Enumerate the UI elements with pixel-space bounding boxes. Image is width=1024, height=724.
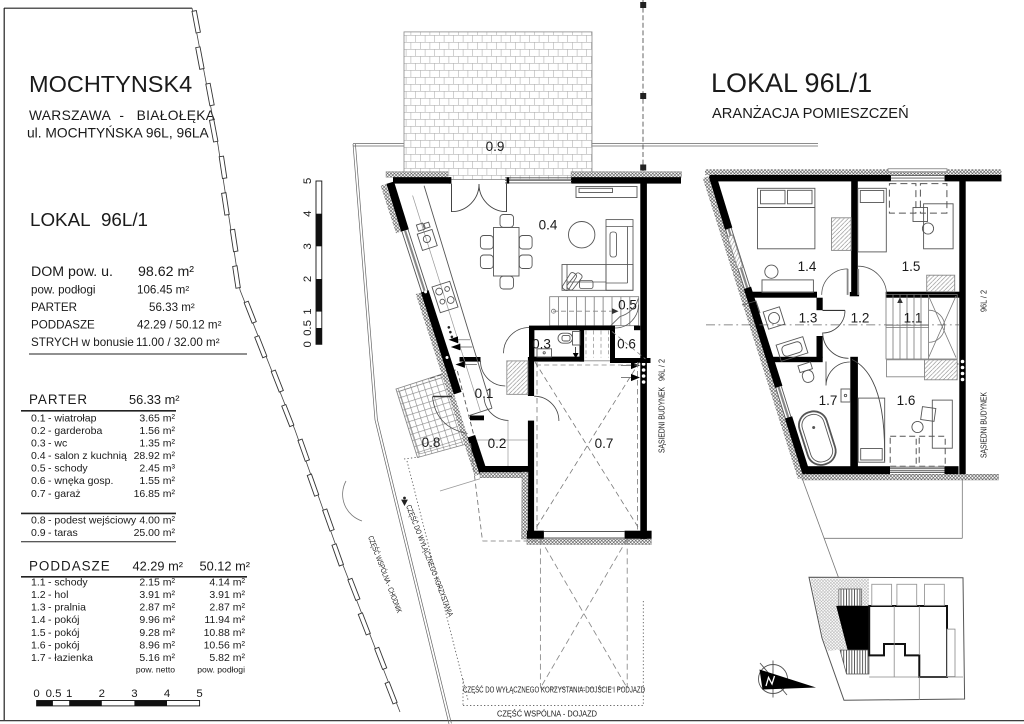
svg-text:DOM pow. u.: DOM pow. u. xyxy=(31,264,113,280)
svg-text:1: 1 xyxy=(302,308,314,314)
svg-text:98.62 m²: 98.62 m² xyxy=(138,264,194,280)
svg-text:5: 5 xyxy=(196,688,202,700)
svg-text:2: 2 xyxy=(99,688,105,700)
svg-text:96L / 2: 96L / 2 xyxy=(657,359,667,381)
svg-text:10.56 m²: 10.56 m² xyxy=(204,639,246,651)
svg-text:- salon z kuchnią: - salon z kuchnią xyxy=(48,450,127,462)
svg-text:0.9: 0.9 xyxy=(486,139,505,154)
svg-text:- schody: - schody xyxy=(48,463,88,475)
svg-text:pow. podłogi: pow. podłogi xyxy=(197,665,245,675)
svg-text:- pokój: - pokój xyxy=(48,639,80,651)
svg-text:LOKAL 96L/1: LOKAL 96L/1 xyxy=(711,68,872,98)
svg-text:- garderoba: - garderoba xyxy=(48,425,102,437)
svg-text:42.29 m²: 42.29 m² xyxy=(133,559,184,574)
svg-text:- wnęka gosp.: - wnęka gosp. xyxy=(48,475,113,487)
svg-text:LOKAL 96L/1: LOKAL 96L/1 xyxy=(30,209,148,230)
svg-text:8.96 m²: 8.96 m² xyxy=(139,639,175,651)
svg-text:0.2: 0.2 xyxy=(31,425,46,437)
svg-text:50.12 m²: 50.12 m² xyxy=(200,559,251,574)
svg-text:ARANŻACJA POMIESZCZEŃ: ARANŻACJA POMIESZCZEŃ xyxy=(712,104,909,122)
svg-text:MOCHTYNSK4: MOCHTYNSK4 xyxy=(29,71,192,97)
svg-text:1.35 m²: 1.35 m² xyxy=(139,438,175,450)
svg-text:56.33 m²: 56.33 m² xyxy=(129,392,180,407)
svg-text:PODDASZE: PODDASZE xyxy=(29,559,111,574)
svg-text:42.29 / 50.12 m²: 42.29 / 50.12 m² xyxy=(137,319,222,332)
svg-text:0.5: 0.5 xyxy=(302,320,314,336)
svg-text:1.56 m²: 1.56 m² xyxy=(139,425,175,437)
svg-text:3.65 m²: 3.65 m² xyxy=(139,412,175,424)
svg-text:1.55 m²: 1.55 m² xyxy=(139,475,175,487)
svg-text:- garaż: - garaż xyxy=(48,488,81,500)
svg-text:1.2: 1.2 xyxy=(31,589,46,601)
svg-text:PODDASZE: PODDASZE xyxy=(31,319,95,332)
svg-text:- pokój: - pokój xyxy=(48,614,80,626)
svg-text:WARSZAWA - BIAŁOŁĘKA: WARSZAWA - BIAŁOŁĘKA xyxy=(29,108,216,123)
svg-text:0.8: 0.8 xyxy=(31,515,46,527)
svg-text:1.4: 1.4 xyxy=(31,614,46,626)
svg-text:3: 3 xyxy=(302,243,314,249)
svg-text:0.6: 0.6 xyxy=(617,337,636,352)
svg-text:3.91 m²: 3.91 m² xyxy=(139,589,175,601)
svg-text:1.1: 1.1 xyxy=(31,576,46,588)
svg-text:SĄSIEDNI BUDYNEK: SĄSIEDNI BUDYNEK xyxy=(979,392,989,458)
svg-text:9.28 m²: 9.28 m² xyxy=(139,627,175,639)
svg-text:ul. MOCHTYŃSKA 96L, 96LA: ul. MOCHTYŃSKA 96L, 96LA xyxy=(27,125,210,141)
svg-text:11.00 / 32.00 m²: 11.00 / 32.00 m² xyxy=(136,336,220,349)
svg-text:1.2: 1.2 xyxy=(851,311,870,326)
svg-text:0.8: 0.8 xyxy=(422,435,441,450)
svg-text:16.85 m²: 16.85 m² xyxy=(134,488,176,500)
svg-text:- wc: - wc xyxy=(48,438,67,450)
svg-text:4.00 m²: 4.00 m² xyxy=(139,515,175,527)
svg-text:0.4: 0.4 xyxy=(31,450,46,462)
svg-text:- pralnia: - pralnia xyxy=(48,602,86,614)
svg-text:56.33 m²: 56.33 m² xyxy=(149,301,195,314)
svg-text:CZĘŚĆ WSPÓLNA - DOJAZD: CZĘŚĆ WSPÓLNA - DOJAZD xyxy=(497,709,597,718)
svg-text:- hol: - hol xyxy=(48,589,68,601)
svg-text:11.94 m²: 11.94 m² xyxy=(204,614,245,626)
svg-text:CZĘŚĆ DO WYŁĄCZNEGO KORZYSTANI: CZĘŚĆ DO WYŁĄCZNEGO KORZYSTANIA-DOJŚCIE … xyxy=(463,686,645,695)
svg-text:3.91 m²: 3.91 m² xyxy=(209,589,245,601)
svg-text:2.15 m²: 2.15 m² xyxy=(139,576,175,588)
svg-text:0: 0 xyxy=(302,341,314,347)
svg-text:pow. podłogi: pow. podłogi xyxy=(31,284,95,297)
svg-text:0.9: 0.9 xyxy=(31,527,46,539)
svg-text:0.3: 0.3 xyxy=(31,438,46,450)
svg-text:0.1: 0.1 xyxy=(475,386,494,401)
svg-text:- taras: - taras xyxy=(48,527,78,539)
svg-text:- wiatrołap: - wiatrołap xyxy=(48,412,97,424)
svg-text:96L / 2: 96L / 2 xyxy=(979,290,989,312)
svg-text:0.5: 0.5 xyxy=(618,298,637,313)
svg-text:4: 4 xyxy=(302,211,314,217)
svg-text:1.5: 1.5 xyxy=(31,627,46,639)
svg-text:10.88 m²: 10.88 m² xyxy=(204,627,246,639)
svg-text:28.92 m²: 28.92 m² xyxy=(134,450,176,462)
svg-text:0.1: 0.1 xyxy=(31,412,46,424)
svg-text:0.5: 0.5 xyxy=(31,463,46,475)
svg-text:9.96 m²: 9.96 m² xyxy=(139,614,175,626)
svg-text:0.6: 0.6 xyxy=(31,475,46,487)
svg-text:1.7: 1.7 xyxy=(31,652,46,664)
svg-text:1.6: 1.6 xyxy=(897,393,916,408)
svg-text:5: 5 xyxy=(302,178,314,184)
svg-text:pow. netto: pow. netto xyxy=(136,665,175,675)
svg-text:1: 1 xyxy=(66,688,72,700)
svg-text:0.7: 0.7 xyxy=(31,488,46,500)
svg-text:2.87 m²: 2.87 m² xyxy=(209,602,245,614)
svg-text:1.4: 1.4 xyxy=(798,259,817,274)
svg-text:0: 0 xyxy=(33,688,39,700)
svg-text:PARTER: PARTER xyxy=(31,301,77,314)
svg-text:4.14 m²: 4.14 m² xyxy=(209,576,245,588)
svg-text:1.3: 1.3 xyxy=(31,602,46,614)
svg-text:1.6: 1.6 xyxy=(31,639,46,651)
svg-text:5.82 m²: 5.82 m² xyxy=(209,652,245,664)
svg-text:PARTER: PARTER xyxy=(29,392,88,407)
svg-text:0.2: 0.2 xyxy=(488,436,507,451)
svg-text:4: 4 xyxy=(164,688,170,700)
svg-text:0.7: 0.7 xyxy=(595,436,614,451)
svg-text:- podest wejściowy: - podest wejściowy xyxy=(48,515,137,527)
svg-text:106.45 m²: 106.45 m² xyxy=(137,284,189,297)
svg-text:2.87 m²: 2.87 m² xyxy=(139,602,175,614)
svg-text:25.00 m²: 25.00 m² xyxy=(134,527,176,539)
svg-text:SĄSIEDNI BUDYNEK: SĄSIEDNI BUDYNEK xyxy=(657,387,667,453)
svg-text:- pokój: - pokój xyxy=(48,627,80,639)
svg-text:- łazienka: - łazienka xyxy=(48,652,93,664)
svg-text:1.3: 1.3 xyxy=(799,311,818,326)
svg-text:5.16 m²: 5.16 m² xyxy=(139,652,175,664)
svg-text:0.4: 0.4 xyxy=(539,218,558,233)
svg-text:2.45 m³: 2.45 m³ xyxy=(139,463,175,475)
svg-text:0.5: 0.5 xyxy=(46,688,62,700)
svg-text:- schody: - schody xyxy=(48,576,88,588)
svg-text:1.1: 1.1 xyxy=(904,311,923,326)
svg-text:0.3: 0.3 xyxy=(532,337,551,352)
svg-text:2: 2 xyxy=(302,276,314,282)
svg-text:1.7: 1.7 xyxy=(819,393,838,408)
svg-text:STRYCH w bonusie: STRYCH w bonusie xyxy=(31,336,134,349)
svg-text:3: 3 xyxy=(131,688,137,700)
svg-text:1.5: 1.5 xyxy=(902,259,921,274)
